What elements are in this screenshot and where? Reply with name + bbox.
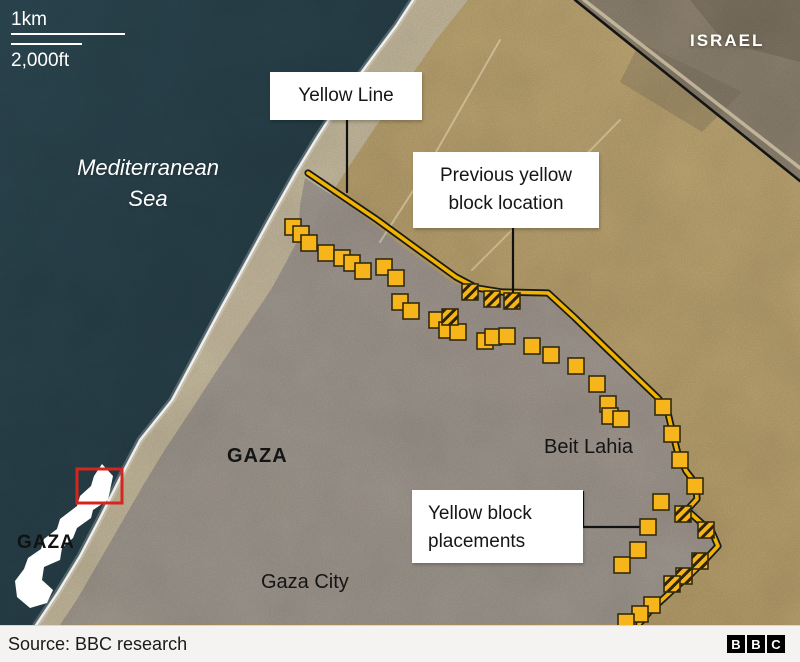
previous-yellow-block: [664, 576, 680, 592]
yellow-block: [618, 614, 634, 625]
previous-yellow-block: [675, 506, 691, 522]
bbc-logo: B B C: [727, 635, 785, 653]
satellite-map: [0, 0, 800, 625]
yellow-block: [450, 324, 466, 340]
yellow-block: [568, 358, 584, 374]
previous-yellow-block: [698, 522, 714, 538]
yellow-block: [543, 347, 559, 363]
yellow-block: [655, 399, 671, 415]
yellow-block: [664, 426, 680, 442]
yellow-block: [640, 519, 656, 535]
previous-yellow-block: [692, 553, 708, 569]
yellow-block: [403, 303, 419, 319]
previous-yellow-block: [462, 284, 478, 300]
yellow-block: [614, 557, 630, 573]
bbc-gaza-map-graphic: 1km 2,000ft ISRAEL Mediterranean Sea GAZ…: [0, 0, 800, 662]
yellow-block: [318, 245, 334, 261]
yellow-block: [687, 478, 703, 494]
footer: Source: BBC research B B C: [0, 625, 800, 662]
yellow-block: [589, 376, 605, 392]
source-text: Source: BBC research: [8, 634, 187, 655]
bbc-logo-block-1: B: [727, 635, 745, 653]
previous-yellow-block: [442, 309, 458, 325]
yellow-block: [388, 270, 404, 286]
yellow-block: [613, 411, 629, 427]
yellow-block: [653, 494, 669, 510]
terrain-speckle-texture: [0, 0, 800, 625]
yellow-block: [499, 328, 515, 344]
yellow-block: [301, 235, 317, 251]
yellow-block: [524, 338, 540, 354]
yellow-block: [630, 542, 646, 558]
previous-yellow-block: [504, 293, 520, 309]
bbc-logo-block-3: C: [767, 635, 785, 653]
bbc-logo-block-2: B: [747, 635, 765, 653]
yellow-block: [672, 452, 688, 468]
yellow-block: [355, 263, 371, 279]
previous-yellow-block: [484, 291, 500, 307]
